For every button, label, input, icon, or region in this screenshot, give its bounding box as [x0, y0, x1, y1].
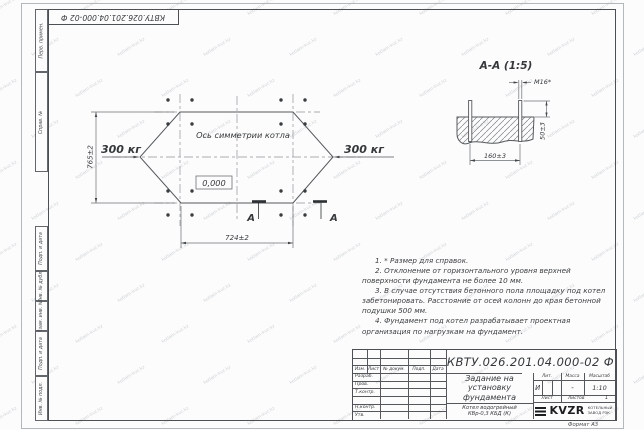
company-name: КОТЕЛЬНЫЙ ЗАВОД РЗК	[588, 406, 613, 415]
drawing-sheet: kotlam-kvz.kzkotlam-kvz.kzkotlam-kvz.kzk…	[0, 0, 644, 430]
anchor-bolt-left	[469, 101, 472, 142]
load-label-right: 300 кг	[344, 143, 385, 156]
plan-view	[91, 94, 394, 248]
tb-lit-value: И	[533, 380, 542, 395]
note-2: 2. Отклонение от горизонтального уровня …	[362, 266, 616, 286]
anchor-bolt-right	[519, 101, 522, 142]
tb-sheets-value: 1	[605, 396, 608, 401]
tb-row-prov: Пров.	[353, 381, 380, 389]
centerlines	[112, 94, 362, 226]
note-3: 3. В случае отсутствия бетонного пола пл…	[362, 286, 616, 316]
format-label: Формат А3	[552, 422, 614, 428]
elevation-value: 0,000	[202, 178, 225, 188]
tb-title: Задание на установку фундамента	[446, 373, 533, 403]
bolt-callout	[509, 80, 531, 99]
tb-mass-value: -	[561, 380, 584, 395]
title-block: Изм. Лист № докум. Подп. Дата Разраб. Пр…	[352, 349, 617, 421]
tb-lit-label: Лит.	[533, 373, 561, 380]
tb-col-dokum: № докум.	[380, 365, 408, 373]
note-4: 4. Фундамент под котел разрабатывает про…	[362, 316, 616, 336]
load-label-left: 300 кг	[101, 143, 142, 156]
dim-width-label: 724±2	[225, 234, 249, 242]
tb-row-tkontr: Т.контр.	[353, 388, 380, 396]
load-leader-left	[102, 156, 139, 159]
load-leader-right	[334, 156, 394, 159]
tb-row-razrab: Разраб.	[353, 373, 380, 381]
section-title: А-А (1:5)	[479, 60, 533, 72]
tb-col-izm: Изм.	[353, 365, 367, 373]
dim-bolt-height-label: 50±3	[539, 122, 547, 140]
foundation-outline	[140, 112, 333, 203]
tb-col-podp: Подп.	[408, 365, 430, 373]
tb-scale-label: Масштаб	[584, 373, 615, 380]
dimension-height	[91, 112, 175, 203]
section-letter-left: А	[246, 213, 255, 224]
tb-row-utv: Утв.	[353, 411, 380, 419]
tb-scale-value: 1:10	[584, 380, 615, 395]
dim-height-label: 765±2	[87, 145, 95, 169]
dim-bolt-span-label: 160±3	[484, 152, 506, 160]
section-view: А-А (1:5) М16* 160±3	[457, 60, 552, 165]
section-letter-right: А	[329, 213, 338, 224]
company-emblem-icon	[535, 405, 546, 416]
tb-company-cell: KVZR КОТЕЛЬНЫЙ ЗАВОД РЗК	[533, 402, 615, 419]
tb-mass-label: Масса	[561, 373, 584, 380]
company-logo: KVZR	[549, 404, 584, 417]
note-1: 1. * Размер для справок.	[362, 256, 616, 266]
notes-block: 1. * Размер для справок. 2. Отклонение о…	[362, 256, 616, 337]
bolt-label: М16*	[534, 78, 552, 86]
dimension-bolt-height	[524, 101, 551, 117]
tb-sheets-label: Листов	[568, 396, 584, 401]
tb-product: Котел водогрейный КВр-0,3 КБД (К)	[446, 403, 533, 419]
tb-col-list: Лист	[367, 365, 380, 373]
anchor-bolts	[166, 98, 306, 216]
section-marks	[252, 201, 327, 219]
tb-doc-number: КВТУ.026.201.04.000-02 Ф	[446, 350, 615, 373]
company-name-line2: ЗАВОД РЗК	[588, 410, 610, 415]
tb-row-nkontr: Н.контр.	[353, 404, 380, 412]
tb-col-data: Дата	[430, 365, 446, 373]
axis-label: Ось симметрии котла	[196, 130, 290, 140]
tb-sheets-cell: Листов 1	[561, 395, 615, 402]
tb-sheet-label: Лист	[533, 395, 561, 402]
